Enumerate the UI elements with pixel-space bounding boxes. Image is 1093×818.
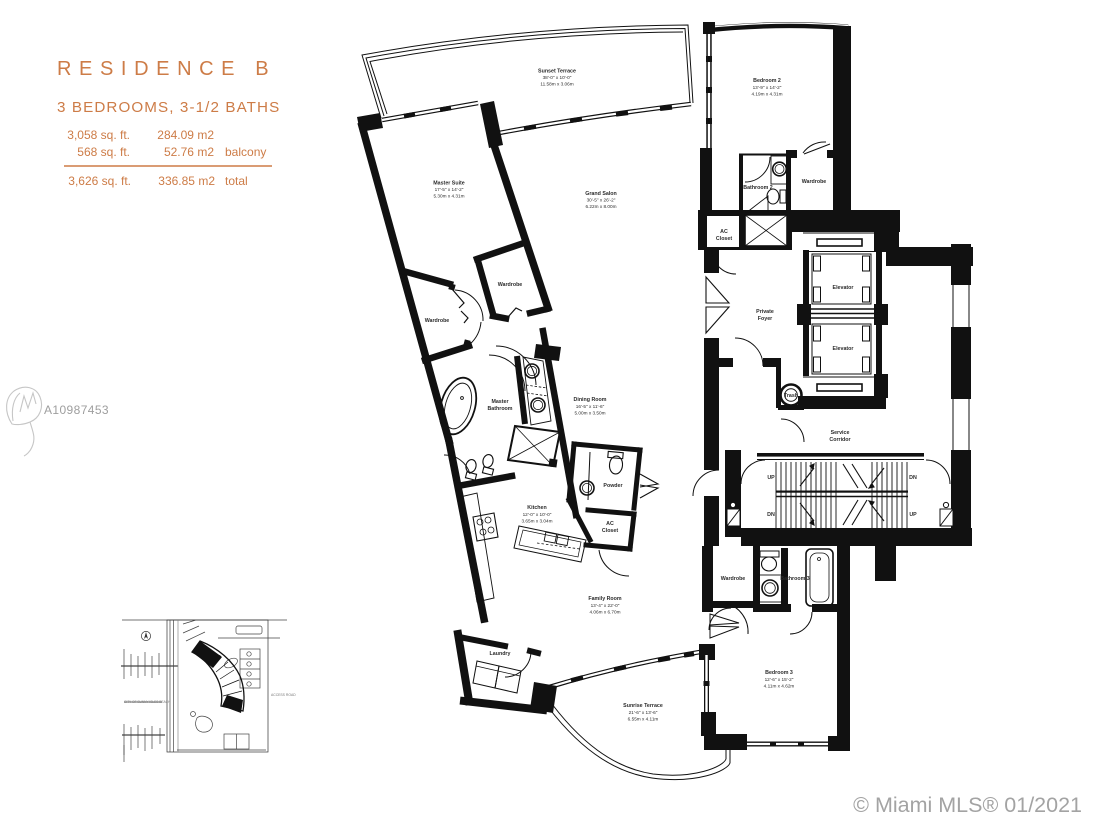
svg-text:Wardrobe: Wardrobe	[425, 318, 450, 324]
svg-text:13'-4" x 22'-0": 13'-4" x 22'-0"	[591, 603, 620, 608]
svg-text:Wardrobe: Wardrobe	[498, 282, 523, 288]
svg-text:4.11m x 4.62m: 4.11m x 4.62m	[764, 683, 795, 688]
svg-text:16'-5" x 11'-6": 16'-5" x 11'-6"	[576, 404, 605, 409]
svg-text:balcony: balcony	[225, 145, 266, 159]
svg-text:Foyer: Foyer	[758, 316, 772, 322]
svg-text:Wardrobe: Wardrobe	[721, 576, 746, 582]
svg-text:ACCESS ROAD: ACCESS ROAD	[271, 693, 296, 697]
svg-text:CITY OF SUNNY ISLES BEACH: CITY OF SUNNY ISLES BEACH	[124, 700, 171, 704]
svg-text:Bathroom 2: Bathroom 2	[743, 185, 772, 191]
svg-text:4.19m x 4.31m: 4.19m x 4.31m	[751, 91, 782, 96]
svg-text:3,626 sq. ft.: 3,626 sq. ft.	[68, 174, 131, 188]
svg-text:21'-6" x 13'-6": 21'-6" x 13'-6"	[629, 710, 658, 715]
svg-text:Dining Room: Dining Room	[574, 397, 607, 403]
svg-text:13'-9" x 14'-2": 13'-9" x 14'-2"	[753, 85, 782, 90]
svg-text:11.58m x 3.06m: 11.58m x 3.06m	[540, 82, 573, 87]
svg-text:DN: DN	[909, 475, 917, 481]
svg-text:5.00m x 3.50m: 5.00m x 3.50m	[574, 410, 605, 415]
svg-text:5.30m x 4.31m: 5.30m x 4.31m	[433, 194, 464, 199]
svg-text:Sunrise Terrace: Sunrise Terrace	[623, 703, 663, 709]
svg-text:38'-0" x 10'-0": 38'-0" x 10'-0"	[543, 75, 572, 80]
svg-text:3 BEDROOMS, 3-1/2 BATHS: 3 BEDROOMS, 3-1/2 BATHS	[57, 99, 280, 116]
svg-text:52.76 m2: 52.76 m2	[164, 145, 214, 159]
svg-text:17'-5" x 14'-2": 17'-5" x 14'-2"	[435, 187, 464, 192]
svg-text:Corridor: Corridor	[829, 437, 850, 443]
svg-text:3,058 sq. ft.: 3,058 sq. ft.	[67, 128, 130, 142]
svg-text:Powder: Powder	[603, 483, 622, 489]
svg-text:Closet: Closet	[602, 528, 618, 534]
svg-text:Service: Service	[831, 430, 850, 436]
svg-text:DN: DN	[767, 512, 775, 518]
svg-text:Elevator: Elevator	[833, 346, 854, 352]
svg-text:Grand Salon: Grand Salon	[585, 191, 617, 197]
svg-text:12'-0" x 10'-0": 12'-0" x 10'-0"	[523, 512, 552, 517]
svg-text:Closet: Closet	[716, 236, 732, 242]
svg-text:4.06m x 6.70m: 4.06m x 6.70m	[589, 609, 620, 614]
svg-text:6.55m x 4.11m: 6.55m x 4.11m	[628, 716, 659, 721]
svg-text:UP: UP	[767, 475, 775, 481]
svg-text:12'-6" x 15'-2": 12'-6" x 15'-2"	[765, 677, 794, 682]
svg-text:Private: Private	[756, 309, 774, 315]
svg-text:284.09 m2: 284.09 m2	[157, 128, 214, 142]
svg-text:Bedroom 3: Bedroom 3	[765, 670, 793, 676]
svg-text:RESIDENCE B: RESIDENCE B	[57, 58, 276, 80]
svg-text:Kitchen: Kitchen	[527, 505, 546, 511]
svg-text:A10987453: A10987453	[44, 403, 109, 417]
svg-text:© Miami MLS® 01/2021: © Miami MLS® 01/2021	[853, 793, 1082, 817]
svg-text:30'-5" x 26'-2": 30'-5" x 26'-2"	[587, 198, 616, 203]
svg-text:Master Suite: Master Suite	[433, 181, 465, 187]
svg-text:Wardrobe: Wardrobe	[802, 179, 827, 185]
svg-text:Bathroom: Bathroom	[487, 406, 512, 412]
svg-text:AC: AC	[720, 229, 728, 235]
svg-text:Elevator: Elevator	[833, 285, 854, 291]
svg-text:3.65m x 3.04m: 3.65m x 3.04m	[521, 518, 552, 523]
svg-text:UP: UP	[909, 512, 917, 518]
svg-text:6.22m x 8.00m: 6.22m x 8.00m	[585, 204, 616, 209]
svg-text:Family Room: Family Room	[588, 596, 622, 602]
svg-text:Bedroom 2: Bedroom 2	[753, 78, 781, 84]
svg-text:568 sq. ft.: 568 sq. ft.	[77, 145, 130, 159]
svg-text:Master: Master	[491, 399, 508, 405]
svg-text:Sunset Terrace: Sunset Terrace	[538, 69, 576, 75]
svg-text:Laundry: Laundry	[490, 651, 511, 657]
svg-text:Bathroom 3: Bathroom 3	[780, 576, 809, 582]
svg-text:AC: AC	[606, 521, 614, 527]
svg-text:336.85 m2: 336.85 m2	[158, 174, 215, 188]
svg-text:Trash: Trash	[784, 393, 798, 399]
svg-text:total: total	[225, 174, 248, 188]
